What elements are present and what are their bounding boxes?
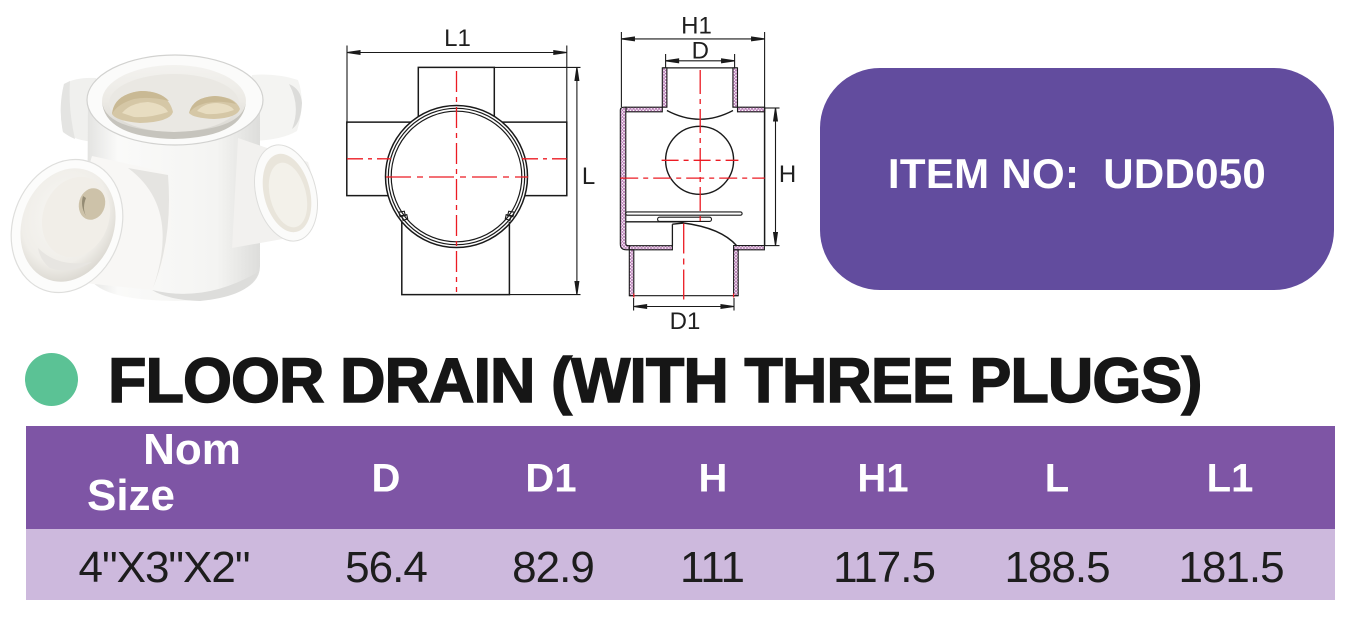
svg-text:H: H bbox=[779, 161, 796, 188]
svg-text:D1: D1 bbox=[670, 308, 701, 335]
svg-text:H1: H1 bbox=[681, 13, 712, 40]
svg-text:L: L bbox=[582, 163, 595, 190]
svg-text:D: D bbox=[692, 38, 709, 65]
svg-text:L1: L1 bbox=[444, 25, 471, 52]
